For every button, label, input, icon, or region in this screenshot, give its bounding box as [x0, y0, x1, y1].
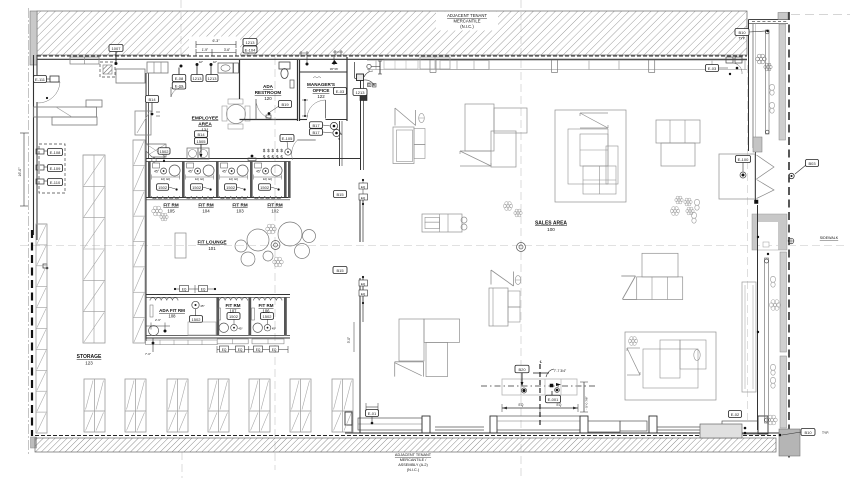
svg-text:B17: B17 — [312, 123, 320, 128]
svg-text:E-110: E-110 — [50, 180, 61, 185]
svg-text:1502: 1502 — [226, 185, 236, 190]
svg-text:100: 100 — [547, 227, 555, 232]
svg-text:B17: B17 — [312, 130, 320, 135]
svg-text:ADA FIT RM: ADA FIT RM — [159, 308, 185, 313]
svg-text:ADJACENT TENANT: ADJACENT TENANT — [447, 13, 487, 18]
svg-text:E-03: E-03 — [708, 66, 717, 71]
svg-text:45°: 45° — [272, 327, 277, 331]
svg-text:103: 103 — [236, 209, 244, 214]
svg-text:FIT RM: FIT RM — [267, 203, 282, 208]
svg-text:$: $ — [267, 148, 270, 153]
svg-text:FIT RM: FIT RM — [226, 303, 241, 308]
svg-text:$: $ — [276, 155, 279, 160]
svg-text:B10: B10 — [738, 30, 746, 35]
svg-text:7'-0": 7'-0" — [145, 352, 151, 356]
svg-text:$: $ — [263, 148, 266, 153]
svg-text:EQ: EQ — [256, 348, 261, 352]
svg-text:EQ EQ: EQ EQ — [161, 177, 170, 181]
svg-text:B15: B15 — [336, 268, 344, 273]
svg-text:E-109: E-109 — [50, 166, 61, 171]
svg-text:1502: 1502 — [158, 185, 168, 190]
svg-text:MERCANTILE /: MERCANTILE / — [400, 458, 428, 462]
svg-text:EQ: EQ — [238, 348, 243, 352]
svg-text:2'-6": 2'-6" — [155, 318, 161, 322]
svg-text:1502: 1502 — [192, 185, 202, 190]
svg-text:123: 123 — [85, 361, 93, 366]
svg-text:$: $ — [280, 148, 283, 153]
svg-text:EQ: EQ — [222, 348, 227, 352]
svg-text:$: $ — [267, 155, 270, 160]
svg-text:FIT RM: FIT RM — [259, 303, 274, 308]
svg-text:EQ: EQ — [201, 288, 206, 292]
svg-text:B19: B19 — [281, 102, 289, 107]
svg-text:- 5'-0 7/8": - 5'-0 7/8" — [585, 396, 589, 409]
svg-text:E-01: E-01 — [368, 411, 377, 416]
svg-text:E-111: E-111 — [35, 77, 46, 82]
svg-text:EQ: EQ — [182, 288, 187, 292]
svg-text:1007: 1007 — [112, 46, 122, 51]
svg-text:E-08: E-08 — [175, 76, 184, 81]
svg-text:45°: 45° — [154, 170, 160, 174]
svg-text:EQ: EQ — [361, 185, 366, 189]
svg-text:S: S — [340, 132, 342, 136]
svg-text:E-02: E-02 — [731, 412, 740, 417]
svg-text:FIT LOUNGE: FIT LOUNGE — [197, 240, 227, 246]
svg-text:$: $ — [272, 155, 275, 160]
svg-text:120: 120 — [264, 96, 272, 101]
svg-text:EQ: EQ — [361, 282, 366, 286]
svg-text:B10: B10 — [804, 430, 812, 435]
svg-text:EQ EQ: EQ EQ — [229, 177, 238, 181]
svg-text:EQ: EQ — [361, 292, 366, 296]
svg-text:1'-9": 1'-9" — [202, 48, 208, 52]
svg-text:1502: 1502 — [260, 185, 270, 190]
svg-text:EQ EQ: EQ EQ — [195, 177, 204, 181]
svg-text:(N.I.C.): (N.I.C.) — [407, 468, 420, 472]
svg-text:FIT RM: FIT RM — [163, 203, 178, 208]
svg-text:3'-0": 3'-0" — [347, 337, 351, 343]
svg-text:EQ EQ: EQ EQ — [263, 177, 272, 181]
svg-text:FIT RM: FIT RM — [198, 203, 213, 208]
svg-text:ADA: ADA — [263, 84, 274, 89]
svg-text:3'-6": 3'-6" — [224, 48, 230, 52]
svg-text:B14: B14 — [148, 97, 156, 102]
svg-text:7'-7 3/4": 7'-7 3/4" — [554, 369, 567, 373]
svg-text:B14: B14 — [197, 132, 205, 137]
svg-text:EQ: EQ — [557, 403, 562, 407]
svg-text:1213: 1213 — [356, 90, 366, 95]
svg-text:1502: 1502 — [229, 314, 239, 319]
svg-text:1502: 1502 — [192, 317, 202, 322]
svg-text:$: $ — [263, 155, 266, 160]
svg-text:42°: 42° — [199, 60, 203, 64]
svg-text:42°: 42° — [213, 60, 217, 64]
svg-text:1502: 1502 — [263, 314, 273, 319]
svg-text:E-108: E-108 — [50, 150, 61, 155]
svg-text:FIT RM: FIT RM — [232, 203, 247, 208]
svg-text:1505: 1505 — [197, 139, 207, 144]
svg-text:ADJACENT TENANT: ADJACENT TENANT — [395, 453, 432, 457]
svg-text:EQ: EQ — [361, 196, 366, 200]
svg-text:1502: 1502 — [160, 149, 170, 154]
svg-text:105: 105 — [167, 209, 175, 214]
svg-text:$: $ — [276, 148, 279, 153]
svg-text:SALES AREA: SALES AREA — [535, 221, 567, 227]
svg-text:101: 101 — [208, 246, 216, 251]
svg-text:E-100: E-100 — [738, 157, 749, 162]
svg-text:$: $ — [280, 155, 283, 160]
svg-text:16'-0": 16'-0" — [18, 167, 22, 177]
svg-text:45°: 45° — [256, 170, 262, 174]
svg-text:36°36': 36°36' — [330, 67, 339, 71]
svg-text:45°: 45° — [222, 170, 228, 174]
svg-text:E-001: E-001 — [548, 397, 559, 402]
svg-text:STORAGE: STORAGE — [77, 354, 102, 360]
svg-text:ASSEMBLY (A-2): ASSEMBLY (A-2) — [398, 463, 428, 467]
svg-text:TYP.: TYP. — [738, 37, 745, 41]
svg-text:102: 102 — [271, 209, 279, 214]
svg-text:45°: 45° — [238, 327, 243, 331]
svg-text:E-105: E-105 — [282, 136, 293, 141]
svg-text:S: S — [338, 137, 340, 141]
svg-text:$: $ — [272, 148, 275, 153]
svg-text:108: 108 — [169, 314, 177, 319]
svg-text:45°: 45° — [200, 304, 205, 308]
svg-text:TYP.: TYP. — [822, 431, 829, 435]
svg-text:1213: 1213 — [246, 40, 256, 45]
svg-text:1213: 1213 — [208, 76, 218, 81]
svg-text:E-104: E-104 — [245, 47, 256, 52]
svg-text:1213: 1213 — [193, 76, 203, 81]
svg-text:℄: ℄ — [539, 360, 543, 364]
svg-text:RESTROOM: RESTROOM — [255, 90, 282, 95]
svg-text:EMPLOYEE: EMPLOYEE — [192, 116, 219, 122]
svg-text:EQ: EQ — [272, 348, 277, 352]
svg-text:MERCANTILE: MERCANTILE — [454, 19, 481, 24]
svg-text:(N.I.C.): (N.I.C.) — [460, 24, 474, 29]
svg-text:122: 122 — [317, 94, 325, 99]
svg-text:MANAGER'S: MANAGER'S — [307, 82, 335, 87]
svg-text:EQ: EQ — [519, 403, 524, 407]
svg-text:45°: 45° — [188, 170, 194, 174]
svg-text:104: 104 — [202, 209, 210, 214]
svg-text:OFFICE: OFFICE — [313, 88, 330, 93]
svg-text:6'-3": 6'-3" — [213, 39, 221, 43]
svg-text:B20: B20 — [518, 367, 526, 372]
svg-text:B03: B03 — [808, 161, 816, 166]
svg-text:B15: B15 — [336, 192, 344, 197]
svg-text:SIDEWALK: SIDEWALK — [820, 236, 839, 240]
svg-text:E-03: E-03 — [336, 89, 345, 94]
